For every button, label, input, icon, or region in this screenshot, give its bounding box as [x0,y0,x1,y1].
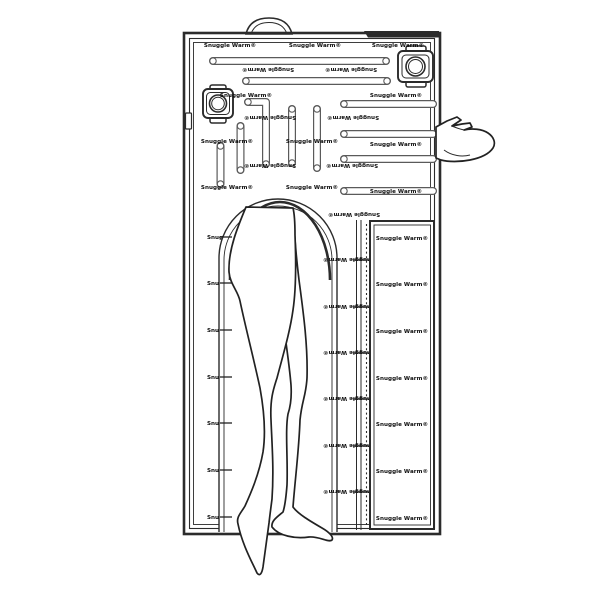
brand-label: Snuggle Warm® [372,43,424,49]
strap-top-2 [243,78,390,84]
brand-label: Snuggle Warm® [376,516,428,522]
strap-vertical-1 [217,143,223,187]
brand-label: Snuggle Warm® [376,282,428,288]
flap-outer [370,221,434,529]
strap-right-1 [341,101,433,107]
product-drawing: Snuggle Warm® Snuggle Warm® Snuggle Warm… [0,0,600,600]
brand-label: Snuggle Warm® [376,376,428,382]
brand-label-reversed: Snuggle Warm® [323,395,375,401]
strap-right-2 [341,131,433,137]
brand-label: Snuggle Warm® [289,43,341,49]
top-tab [246,18,292,34]
hand [436,117,494,162]
brand-label: Snuggle Warm® [376,329,428,335]
brand-label: Snuggle Warm® [376,236,428,242]
brand-label-reversed: Snuggle Warm® [323,488,375,494]
right-flap-panel: Snuggle Warm® Snuggle Warm® Snuggle Warm… [370,221,434,529]
brand-label-reversed: Snuggle Warm® [244,162,296,168]
brand-label: Snuggle Warm® [376,422,428,428]
brand-label: Snuggle Warm® [204,43,256,49]
left-edge-tab [186,113,192,129]
brand-label-reversed: Snuggle Warm® [323,256,375,262]
brand-label-reversed: Snuggle Warm® [244,114,296,120]
strap-right-3 [341,156,433,162]
brand-label-reversed: Snuggle Warm® [323,349,375,355]
brand-label: Snuggle Warm® [370,93,422,99]
buckle-right [398,46,433,87]
strap-top-1 [210,58,389,64]
brand-label: Snuggle Warm® [370,142,422,148]
strap-vertical-2 [237,123,243,173]
brand-label-reversed: Snuggle Warm® [325,66,377,72]
brand-label-reversed: Snuggle Warm® [323,442,375,448]
brand-label: Snuggle Warm® [286,185,338,191]
brand-label: Snuggle Warm® [370,189,422,195]
brand-label: Snuggle Warm® [286,139,338,145]
top-right-dark-bar [364,31,439,38]
brand-label-reversed: Snuggle Warm® [242,66,294,72]
brand-label: Snuggle Warm® [220,93,272,99]
brand-label: Snuggle Warm® [201,139,253,145]
brand-label-reversed: Snuggle Warm® [328,211,380,217]
brand-label-reversed: Snuggle Warm® [323,303,375,309]
brand-label-reversed: Snuggle Warm® [326,162,378,168]
buckle-left [203,85,233,123]
illustration-canvas: Snuggle Warm® Snuggle Warm® Snuggle Warm… [0,0,600,600]
brand-label: Snuggle Warm® [201,185,253,191]
brand-label-reversed: Snuggle Warm® [327,114,379,120]
brand-label: Snuggle Warm® [376,469,428,475]
